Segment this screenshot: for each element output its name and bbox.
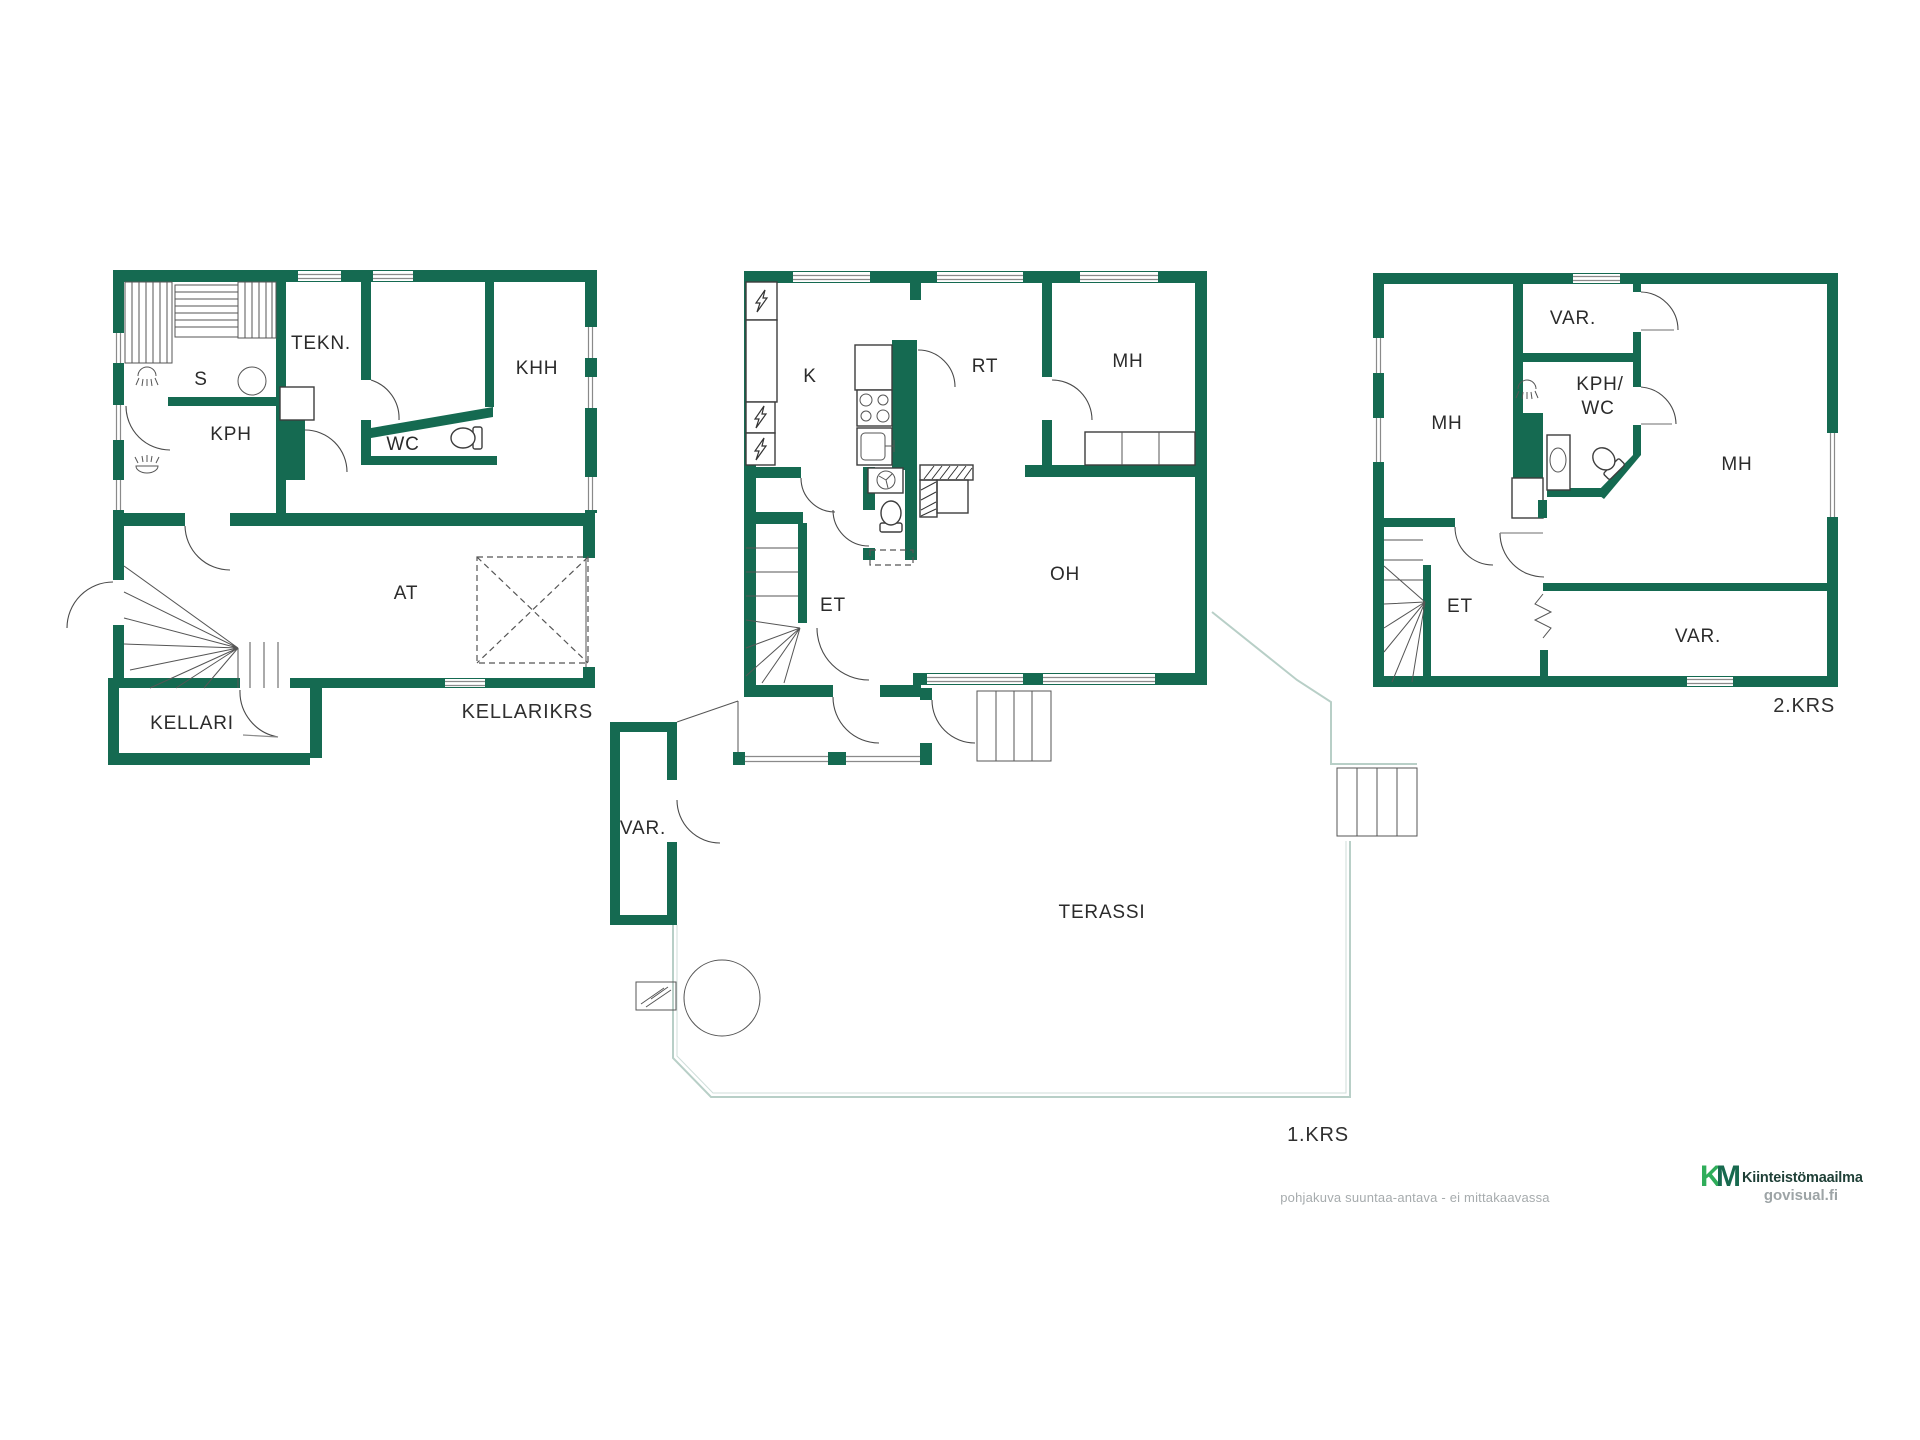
room-label-var: VAR. [620,818,666,839]
floorplan-page: { "footer": { "disclaimer": "pohjakuva s… [0,0,1920,1440]
room-label-mh-east: MH [1721,454,1752,475]
logo-site: govisual.fi [1764,1187,1838,1204]
room-label-rt: RT [972,356,999,377]
room-label-wc: WC [386,434,419,455]
second-floor-plan: VAR. MH KPH/ WC MH ET VAR. 2.KRS [1373,273,1838,717]
porch-windows [677,701,920,762]
sauna-benches [125,282,276,363]
floorplan-canvas: S TEKN. KPH WC KHH AT KELLARI KELLARIKRS [0,0,1920,1440]
closet [1085,432,1195,465]
logo-letter-m: M [1716,1160,1741,1193]
basin-icon [238,367,266,395]
deck-stairs [977,691,1051,761]
second-floor-stairs [1384,540,1425,682]
room-label-khh: KHH [516,358,559,379]
room-label-mh-west: MH [1431,413,1462,434]
yard-objects [636,960,760,1036]
room-label-var-south: VAR. [1675,626,1721,647]
toilet-icon [451,427,482,449]
window [793,272,1158,282]
first-floor-plan: K RT MH OH ET VAR. TERASSI 1.KRS [610,271,1349,1146]
room-label-oh: OH [1050,564,1080,585]
kitchen-appliances [746,282,777,465]
carport-marking [477,557,588,663]
room-label-kph: KPH [210,424,251,445]
fireplace-icon [920,465,973,517]
room-label-var-top: VAR. [1550,308,1596,329]
terrace-steps [1337,768,1417,836]
shower-icon [136,367,158,386]
logo-wordmark: Kiinteistömaailma [1742,1170,1864,1186]
room-label-mh: MH [1112,351,1143,372]
room-label-tekn: TEKN. [291,333,351,354]
room-label-et: ET [1447,596,1473,617]
slope-marker [1535,594,1551,638]
floor-label-first: 1.KRS [1287,1124,1349,1146]
bath-sink [1547,435,1570,490]
basement-stairs [124,566,278,688]
footer: pohjakuva suuntaa-antava - ei mittakaava… [1280,1160,1864,1205]
window [1373,274,1838,686]
room-label-at: AT [394,583,418,604]
kitchen-sink-icon [857,428,894,465]
disclaimer-text: pohjakuva suuntaa-antava - ei mittakaava… [1280,1190,1550,1205]
stove-icon [855,345,892,426]
room-label-kphwc-1: KPH/ [1576,374,1624,395]
brand-logo: K M Kiinteistömaailma govisual.fi [1700,1160,1864,1204]
window [113,333,124,510]
basement-plan: S TEKN. KPH WC KHH AT KELLARI KELLARIKRS [67,270,597,765]
boiler-icon [280,387,314,420]
room-label-sauna: S [194,369,207,390]
room-label-et: ET [820,595,846,616]
room-label-kitchen: K [803,366,816,387]
window [445,679,485,687]
sink-icon [135,455,159,473]
room-label-kphwc-2: WC [1581,398,1614,419]
floor-label-second: 2.KRS [1773,695,1835,717]
floor-label-basement: KELLARIKRS [462,701,593,723]
room-label-kellari: KELLARI [150,713,234,734]
room-label-terassi: TERASSI [1059,902,1146,923]
